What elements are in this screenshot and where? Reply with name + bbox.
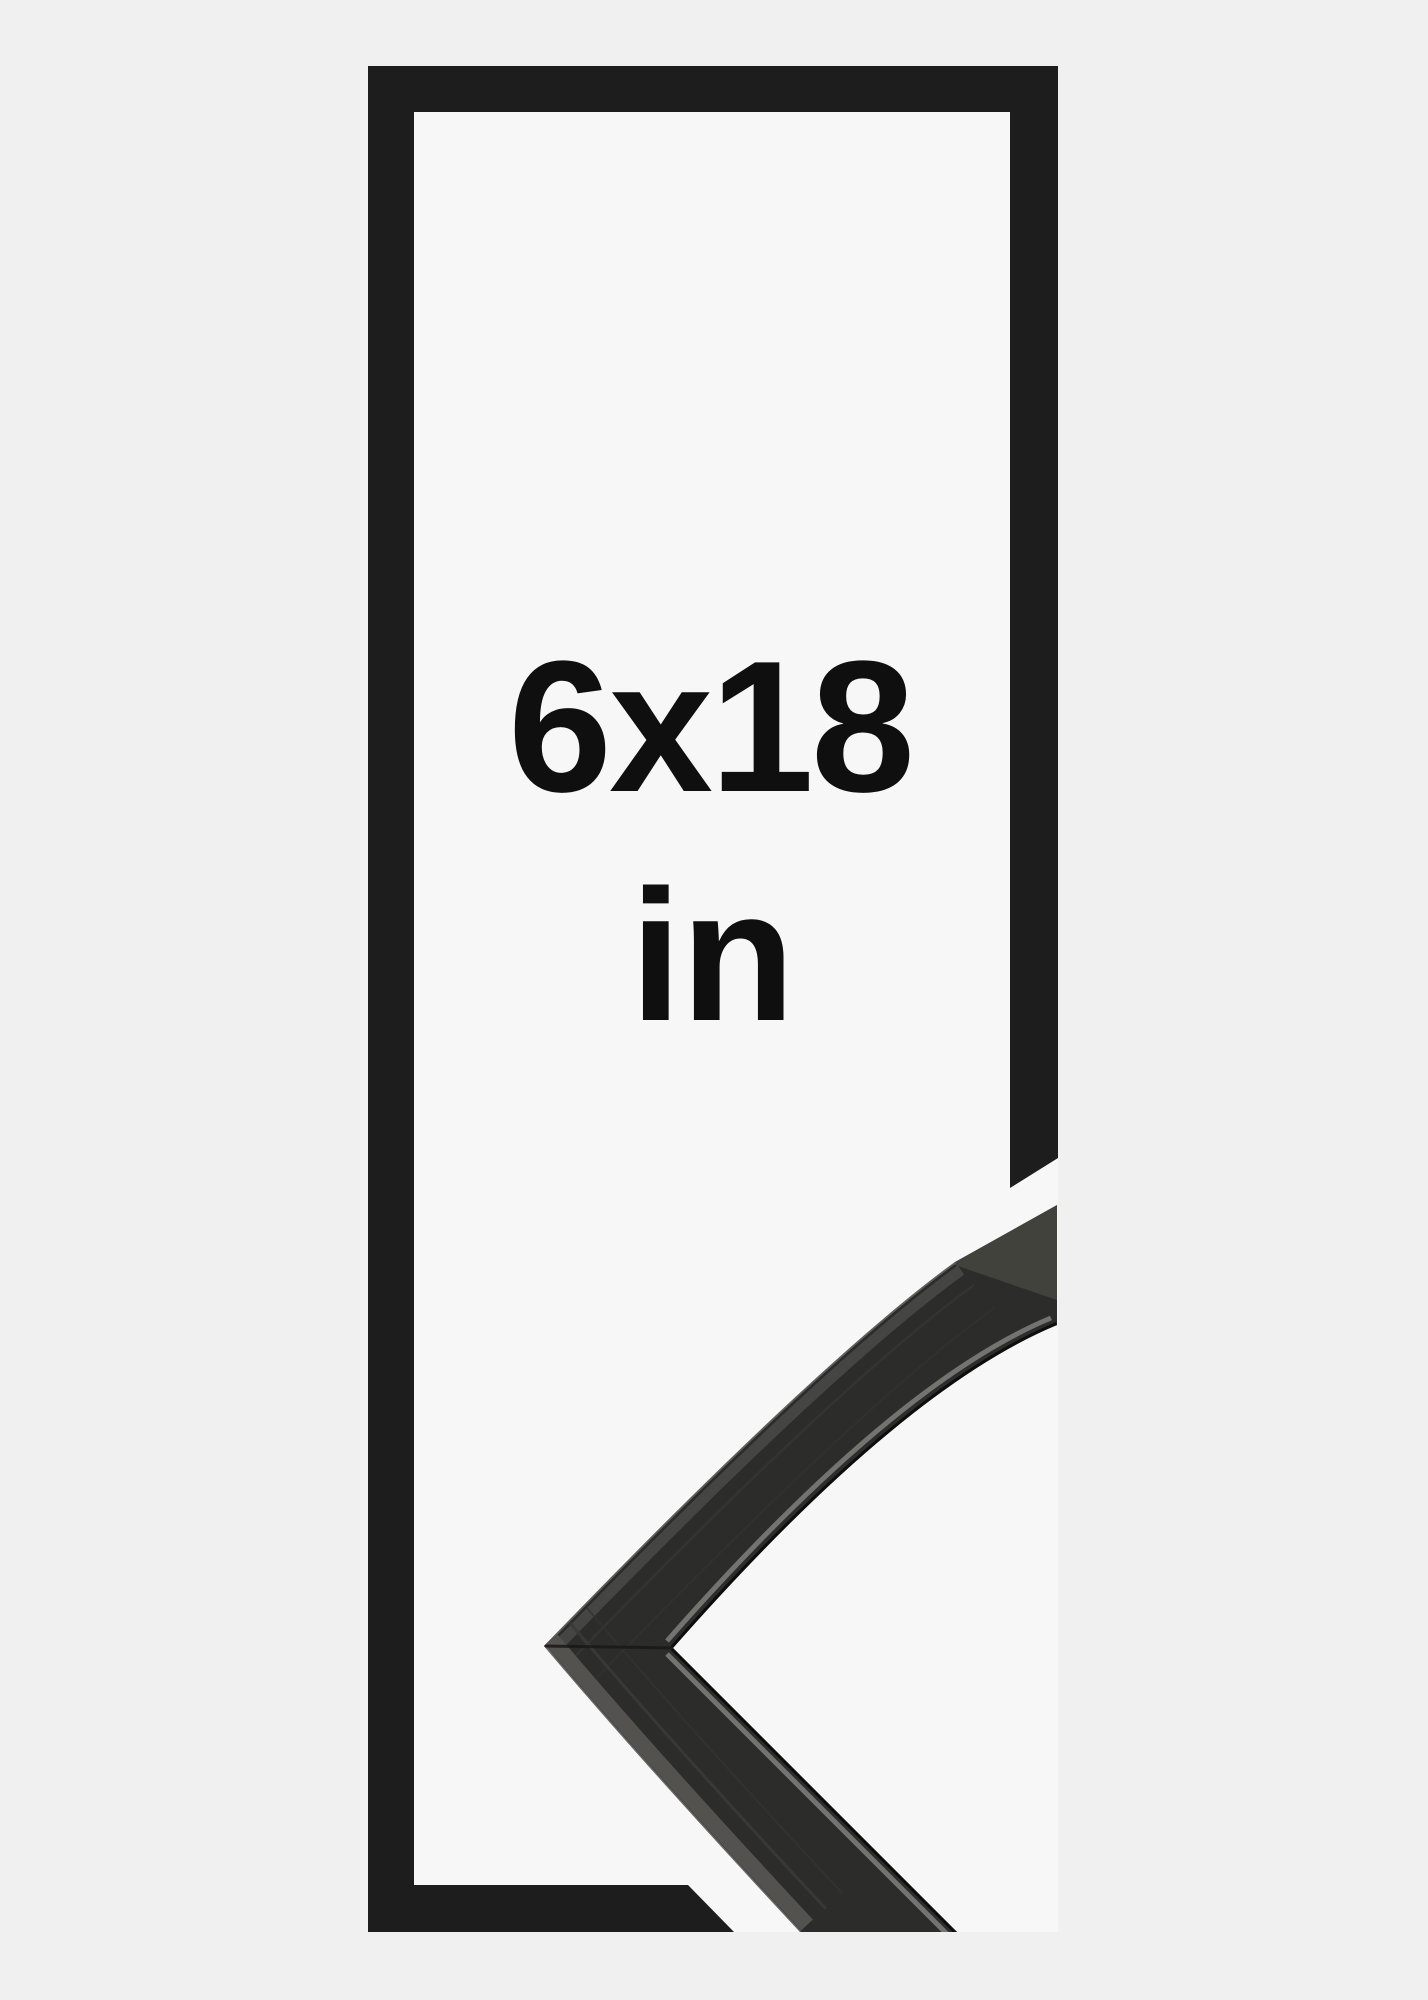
frame-left-bar: [368, 66, 414, 1932]
unit-label: in: [630, 862, 794, 1049]
molding-miter-seam: [544, 1646, 673, 1648]
frame-bottom-bar: [368, 1885, 734, 1932]
size-label: 6x18: [508, 633, 912, 820]
frame-right-bar: [1010, 112, 1058, 1188]
product-image: 6x18 in: [0, 0, 1428, 2000]
frame-top-bar: [368, 66, 1058, 112]
